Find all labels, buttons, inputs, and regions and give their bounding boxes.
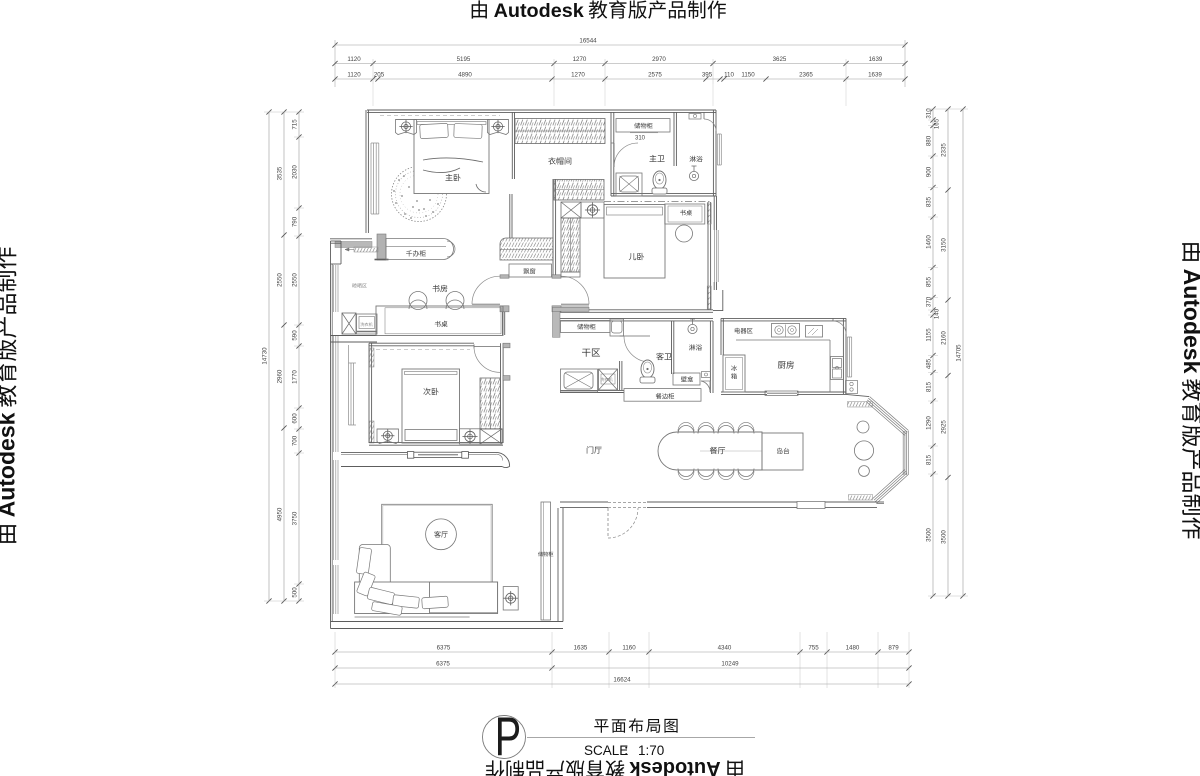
svg-text:由 Autodesk 教育版产品制作: 由 Autodesk 教育版产品制作 [485,756,745,776]
svg-text:2335: 2335 [939,143,948,157]
svg-text:1635: 1635 [574,643,588,652]
svg-text:14730: 14730 [260,347,269,365]
svg-text:14705: 14705 [954,344,963,362]
svg-text:815: 815 [924,454,933,465]
svg-text:2550: 2550 [290,273,299,287]
svg-text:淋浴: 淋浴 [689,154,703,164]
svg-text:飘窗: 飘窗 [523,266,536,275]
svg-text:855: 855 [924,276,933,287]
svg-text:干区: 干区 [581,345,601,359]
svg-text:SCALE: SCALE [584,739,628,759]
svg-text:3500: 3500 [924,528,933,542]
svg-text:110: 110 [724,70,734,79]
svg-text:590: 590 [290,330,299,341]
svg-text:500: 500 [290,587,299,598]
svg-text:厨房: 厨房 [777,359,794,371]
svg-text:主卧: 主卧 [445,173,461,184]
svg-text:书房: 书房 [432,284,448,295]
svg-text:次卧: 次卧 [423,387,439,398]
svg-text:880: 880 [924,135,933,146]
svg-text:2365: 2365 [799,70,813,79]
svg-text:485: 485 [924,358,933,369]
svg-text:3625: 3625 [773,54,787,63]
svg-text:370: 370 [924,296,933,307]
svg-text:1270: 1270 [571,70,585,79]
svg-text:205: 205 [374,70,385,79]
svg-text:790: 790 [290,216,299,227]
svg-text:1639: 1639 [868,70,882,79]
svg-text:3750: 3750 [290,511,299,525]
svg-text:客卫: 客卫 [656,352,672,363]
svg-text:835: 835 [924,196,933,207]
svg-text:16544: 16544 [579,36,597,45]
svg-text:晾晒区: 晾晒区 [352,283,367,290]
svg-text:书桌: 书桌 [434,319,448,329]
svg-text:600: 600 [290,413,299,424]
svg-text:餐边柜: 餐边柜 [656,391,675,400]
svg-text:1160: 1160 [622,643,636,652]
svg-text:4340: 4340 [718,643,732,652]
svg-text:1770: 1770 [290,370,299,384]
svg-text:2925: 2925 [939,420,948,434]
svg-text:310: 310 [635,133,646,142]
svg-text:395: 395 [702,70,713,79]
svg-text:淋浴: 淋浴 [689,342,703,352]
svg-text:餐厅: 餐厅 [710,446,726,457]
svg-text:儿卧: 儿卧 [629,252,645,263]
svg-text:700: 700 [290,435,299,446]
svg-text:储物柜: 储物柜 [634,121,653,130]
svg-text:900: 900 [924,166,933,177]
svg-text:10249: 10249 [721,659,739,668]
svg-text:5195: 5195 [457,54,471,63]
svg-text:2160: 2160 [939,331,948,345]
svg-text:洗衣机: 洗衣机 [600,377,613,383]
svg-text:2960: 2960 [275,369,284,383]
svg-text:由 Autodesk 教育版产品制作: 由 Autodesk 教育版产品制作 [1177,240,1200,539]
svg-text:6375: 6375 [436,659,450,668]
svg-text:1460: 1460 [924,235,933,249]
svg-text:1150: 1150 [741,70,755,79]
svg-text:2970: 2970 [652,54,666,63]
svg-text:3500: 3500 [939,530,948,544]
svg-text:客厅: 客厅 [434,530,448,540]
svg-text:2575: 2575 [648,70,662,79]
svg-text:储物柜: 储物柜 [577,322,596,331]
svg-text:715: 715 [290,119,299,130]
svg-text:3150: 3150 [939,238,948,252]
svg-text:1155: 1155 [924,328,933,342]
svg-text:洗衣机: 洗衣机 [360,322,373,328]
svg-text:衣帽间: 衣帽间 [548,156,572,167]
svg-text:千办柜: 千办柜 [406,248,427,258]
svg-text:由 Autodesk 教育版产品制作: 由 Autodesk 教育版产品制作 [469,0,726,23]
svg-text:16624: 16624 [613,675,631,684]
svg-text:1:70: 1:70 [638,739,664,759]
svg-text:879: 879 [888,643,899,652]
svg-text:2550: 2550 [275,273,284,287]
svg-text:岛台: 岛台 [776,446,790,456]
svg-text:1480: 1480 [846,643,860,652]
svg-text:3535: 3535 [275,166,284,180]
svg-text:储物柜: 储物柜 [538,551,554,558]
svg-text:平面布局图: 平面布局图 [594,714,681,737]
svg-text:755: 755 [808,643,819,652]
svg-text:1120: 1120 [347,54,361,63]
svg-text:310: 310 [924,108,933,119]
svg-text:2030: 2030 [290,165,299,179]
svg-text:箱: 箱 [731,372,737,381]
svg-text:壁龛: 壁龛 [681,375,694,384]
svg-text:书桌: 书桌 [680,208,693,217]
svg-text:电器区: 电器区 [734,326,753,335]
svg-text:由 Autodesk 教育版产品制作: 由 Autodesk 教育版产品制作 [0,246,22,545]
svg-text:1270: 1270 [573,54,587,63]
svg-text:1120: 1120 [347,70,361,79]
svg-text:1639: 1639 [869,54,883,63]
svg-text:4890: 4890 [458,70,472,79]
svg-text:门厅: 门厅 [586,445,602,456]
svg-text:1290: 1290 [924,416,933,430]
svg-text:4950: 4950 [275,507,284,521]
svg-text:815: 815 [924,381,933,392]
svg-text:6375: 6375 [437,643,451,652]
svg-text:主卫: 主卫 [649,154,665,165]
